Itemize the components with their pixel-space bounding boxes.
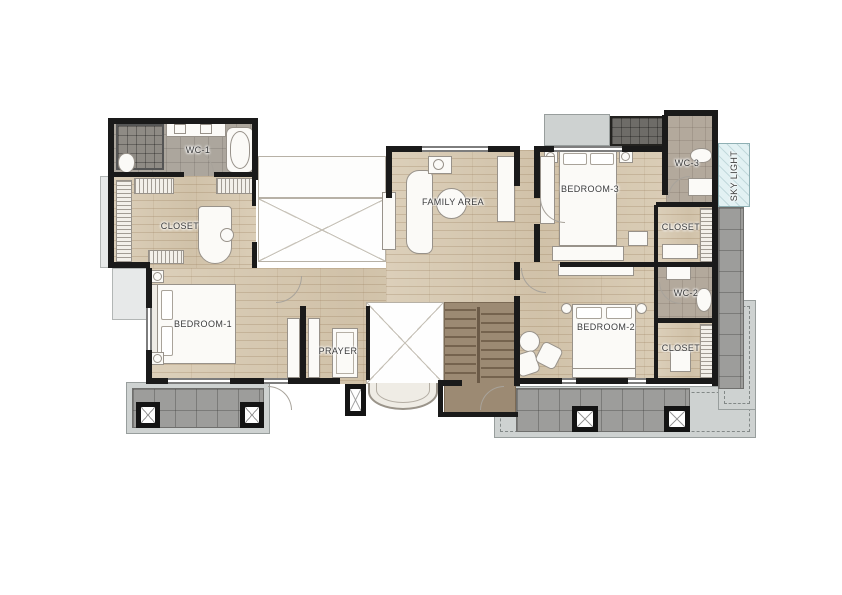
sofa-family <box>406 170 433 254</box>
wall <box>108 262 150 268</box>
wall <box>108 172 184 177</box>
pillow-b2-a <box>576 307 602 319</box>
lamp-b2-right <box>636 303 647 314</box>
pillow-b2-b <box>606 307 632 319</box>
closet-rack-bottom <box>148 250 184 264</box>
dresser-b3 <box>628 231 648 246</box>
room-label-wc3: WC-3 <box>675 158 700 168</box>
pillow-b3-b <box>590 153 614 165</box>
canopy-top-right <box>544 114 610 146</box>
closet-rack-top-a <box>134 178 174 194</box>
room-label-wc2: WC-2 <box>674 288 699 298</box>
wall <box>656 262 718 267</box>
column <box>345 384 366 416</box>
stair-flight-left <box>445 309 476 381</box>
wall <box>654 205 658 384</box>
tv-console-b1 <box>287 318 300 378</box>
closet-rack-top-b <box>216 178 254 194</box>
sink-wc3 <box>688 178 713 196</box>
pillow-b1-a <box>161 290 173 320</box>
room-label-family-area: FAMILY AREA <box>422 197 484 207</box>
shower-tile-roof <box>610 116 666 146</box>
wall <box>712 206 718 386</box>
room-label-prayer: PRAYER <box>319 346 358 356</box>
column <box>664 406 690 432</box>
wall <box>664 110 718 116</box>
window-family <box>422 146 488 152</box>
wall <box>656 318 718 323</box>
wall <box>252 180 256 206</box>
wall <box>252 242 257 268</box>
lamp-b3-right <box>621 152 630 161</box>
lamp-b1-bottom <box>153 354 162 363</box>
window-bedroom2-b <box>628 378 646 384</box>
stair-rail <box>477 307 480 383</box>
terrace-side-tiles <box>718 207 744 389</box>
wall <box>300 306 306 380</box>
wall <box>560 262 660 267</box>
bench-closet-b3 <box>662 244 698 259</box>
room-label-bedroom3: BEDROOM-3 <box>561 184 619 194</box>
wall <box>438 412 518 417</box>
wall <box>438 384 443 414</box>
bathtub-wc1 <box>226 127 254 173</box>
room-label-closet-master: CLOSET <box>161 221 199 231</box>
door-arc-terrace-left <box>268 386 292 410</box>
column <box>240 402 264 428</box>
wall <box>288 378 340 384</box>
pillow-b3-a <box>563 153 587 165</box>
lamp-b2-left <box>561 303 572 314</box>
planter-left <box>112 268 148 320</box>
room-label-bedroom2: BEDROOM-2 <box>577 322 635 332</box>
sink-wc2 <box>666 266 691 280</box>
chair-closet-b2 <box>670 350 691 372</box>
table-b2 <box>519 331 540 352</box>
column <box>136 402 160 428</box>
wall <box>576 378 628 384</box>
staircase <box>444 302 516 414</box>
window-bedroom2-a <box>562 378 576 384</box>
void-open-below-stair <box>366 302 444 384</box>
wall <box>514 146 520 186</box>
bay-window <box>368 383 438 410</box>
wall <box>514 296 520 386</box>
closet-stool <box>220 228 234 242</box>
wall <box>108 118 258 124</box>
wall <box>534 224 540 262</box>
wall <box>514 262 520 280</box>
window-bedroom1-b <box>264 378 288 384</box>
flat-roof-top <box>258 156 386 198</box>
room-label-closet-bedroom3: CLOSET <box>662 222 700 232</box>
bench-b3 <box>552 246 624 261</box>
column <box>572 406 598 432</box>
window-bedroom3 <box>554 146 622 152</box>
wall <box>656 202 718 207</box>
floor-plan: WC-1 CLOSET BEDROOM-1 PRAYER FAMILY AREA… <box>0 0 842 595</box>
wall <box>662 115 668 195</box>
lamp-family <box>433 159 444 170</box>
void-open-below-top <box>258 198 386 262</box>
wall <box>230 378 264 384</box>
wall <box>386 146 392 198</box>
lamp-b1-top <box>153 272 162 281</box>
room-label-bedroom1: BEDROOM-1 <box>174 319 232 329</box>
room-label-closet-bedroom2: CLOSET <box>662 343 700 353</box>
wall <box>516 378 562 384</box>
window-bedroom1-left <box>146 308 152 350</box>
toilet-wc1 <box>118 153 135 173</box>
closet-rack-left <box>116 180 132 264</box>
cabinet-family-right <box>497 156 515 222</box>
wall <box>252 118 258 180</box>
stair-flight-right <box>481 313 517 379</box>
wall <box>146 350 152 384</box>
wall <box>146 268 152 308</box>
window-bedroom1-a <box>168 378 230 384</box>
bench-b2 <box>572 368 636 378</box>
wall <box>534 146 540 198</box>
sink-wc1-right <box>200 124 212 134</box>
wall <box>108 118 114 268</box>
sink-wc1-left <box>174 124 186 134</box>
cabinet-corridor <box>382 192 396 250</box>
room-label-skylight: SKY LIGHT <box>729 151 739 201</box>
wall <box>366 306 370 380</box>
room-label-wc1: WC-1 <box>186 145 211 155</box>
